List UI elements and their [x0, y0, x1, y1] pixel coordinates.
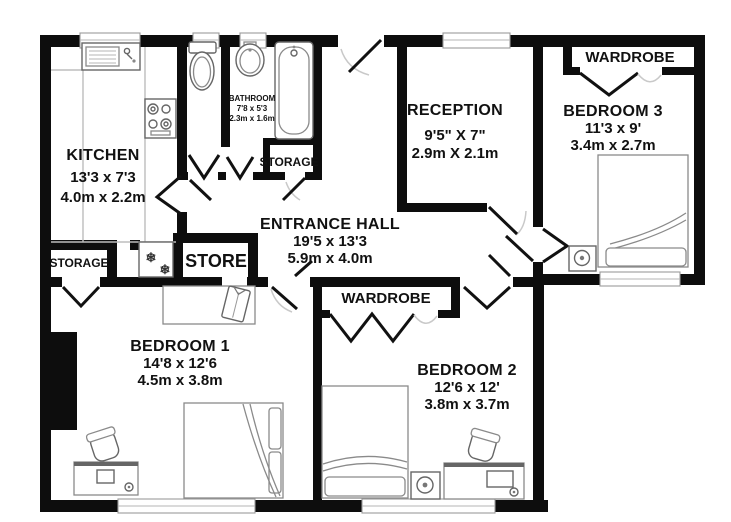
bedroom2-label: BEDROOM 2 — [417, 362, 517, 379]
bathroom-dim-imperial: 7'8 x 5'3 — [237, 104, 268, 113]
shelf-unit — [163, 286, 255, 324]
bedroom3-door — [543, 229, 567, 262]
bed — [322, 386, 408, 498]
reception-dim-imperial: 9'5" X 7" — [424, 127, 485, 144]
reception-door — [489, 207, 517, 234]
bedroom3-dim-imperial: 11'3 x 9' — [585, 120, 641, 137]
speaker-icon — [411, 472, 440, 499]
speaker-icon — [569, 246, 596, 271]
bedroom2-dim-metric: 3.8m x 3.7m — [424, 396, 509, 413]
pillar — [51, 332, 77, 430]
bedroom1-furniture — [74, 286, 283, 498]
entrance-opening — [338, 33, 384, 49]
toilet-icon — [189, 42, 216, 90]
wardrobe-bedroom3-bifold — [580, 73, 638, 95]
bathroom-label: BATHROOM — [229, 94, 276, 103]
entrance-hall-dim-imperial: 19'5 x 13'3 — [293, 233, 367, 250]
wardrobe-bedroom2-label: WARDROBE — [341, 290, 430, 307]
bedroom3-label: BEDROOM 3 — [563, 103, 663, 120]
chair — [86, 426, 123, 463]
storage-hall-label: STORAGE — [49, 256, 108, 270]
bedroom1-label: BEDROOM 1 — [130, 338, 230, 355]
kitchen-dim-metric: 4.0m x 2.2m — [60, 189, 145, 206]
stove-icon — [145, 99, 176, 138]
wardrobe-bedroom2-bifold — [330, 314, 414, 341]
bed — [598, 155, 688, 267]
bedroom3-dim-metric: 3.4m x 2.7m — [570, 137, 655, 154]
reception-dim-metric: 2.9m X 2.1m — [412, 145, 499, 162]
desk — [444, 463, 524, 499]
bathroom-fixtures — [189, 42, 313, 139]
store-label: STORE — [185, 251, 247, 271]
labels: KITCHEN 13'3 x 7'3 4.0m x 2.2m BATHROOM … — [49, 49, 674, 413]
bed — [184, 403, 283, 498]
bedroom2-window — [362, 499, 495, 513]
chair — [465, 428, 501, 464]
wardrobe-bedroom3-label: WARDROBE — [585, 49, 674, 66]
desk — [74, 462, 138, 495]
bedroom3-furniture — [569, 155, 688, 271]
wc-door — [189, 155, 219, 178]
bedroom2-dim-imperial: 12'6 x 12' — [434, 379, 500, 396]
reception-window — [443, 33, 510, 48]
bathroom-door — [227, 157, 253, 178]
storage-bathroom-door — [283, 178, 305, 200]
freezer-icon: ❄ ❄ — [139, 242, 173, 277]
storage-hall-door — [63, 287, 99, 306]
bathroom-dim-metric: 2.3m x 1.6m — [229, 114, 274, 123]
kitchen-dim-imperial: 13'3 x 7'3 — [70, 169, 136, 186]
bedroom2-door — [464, 287, 510, 308]
bedroom1-dim-metric: 4.5m x 3.8m — [137, 372, 222, 389]
bedroom1-door — [272, 287, 297, 309]
snowflake-icon: ❄ — [146, 250, 157, 265]
kitchen-label: KITCHEN — [66, 147, 139, 164]
bedroom3-window — [600, 272, 680, 286]
floorplan: ❄ ❄ — [0, 0, 731, 522]
kitchen-fixtures — [51, 43, 176, 242]
snowflake-icon: ❄ — [160, 262, 171, 277]
sink-icon — [82, 43, 140, 70]
reception-label: RECEPTION — [407, 102, 503, 119]
bedroom1-dim-imperial: 14'8 x 12'6 — [143, 355, 217, 372]
bedroom1-window — [118, 499, 255, 513]
entrance-hall-label: ENTRANCE HALL — [260, 216, 400, 233]
entrance-hall-dim-metric: 5.9m x 4.0m — [287, 250, 372, 267]
floorplan-svg: ❄ ❄ — [0, 0, 731, 522]
storage-bathroom-label: STORAGE — [259, 155, 318, 169]
bathtub-icon — [275, 42, 313, 139]
kitchen-door — [157, 176, 181, 214]
